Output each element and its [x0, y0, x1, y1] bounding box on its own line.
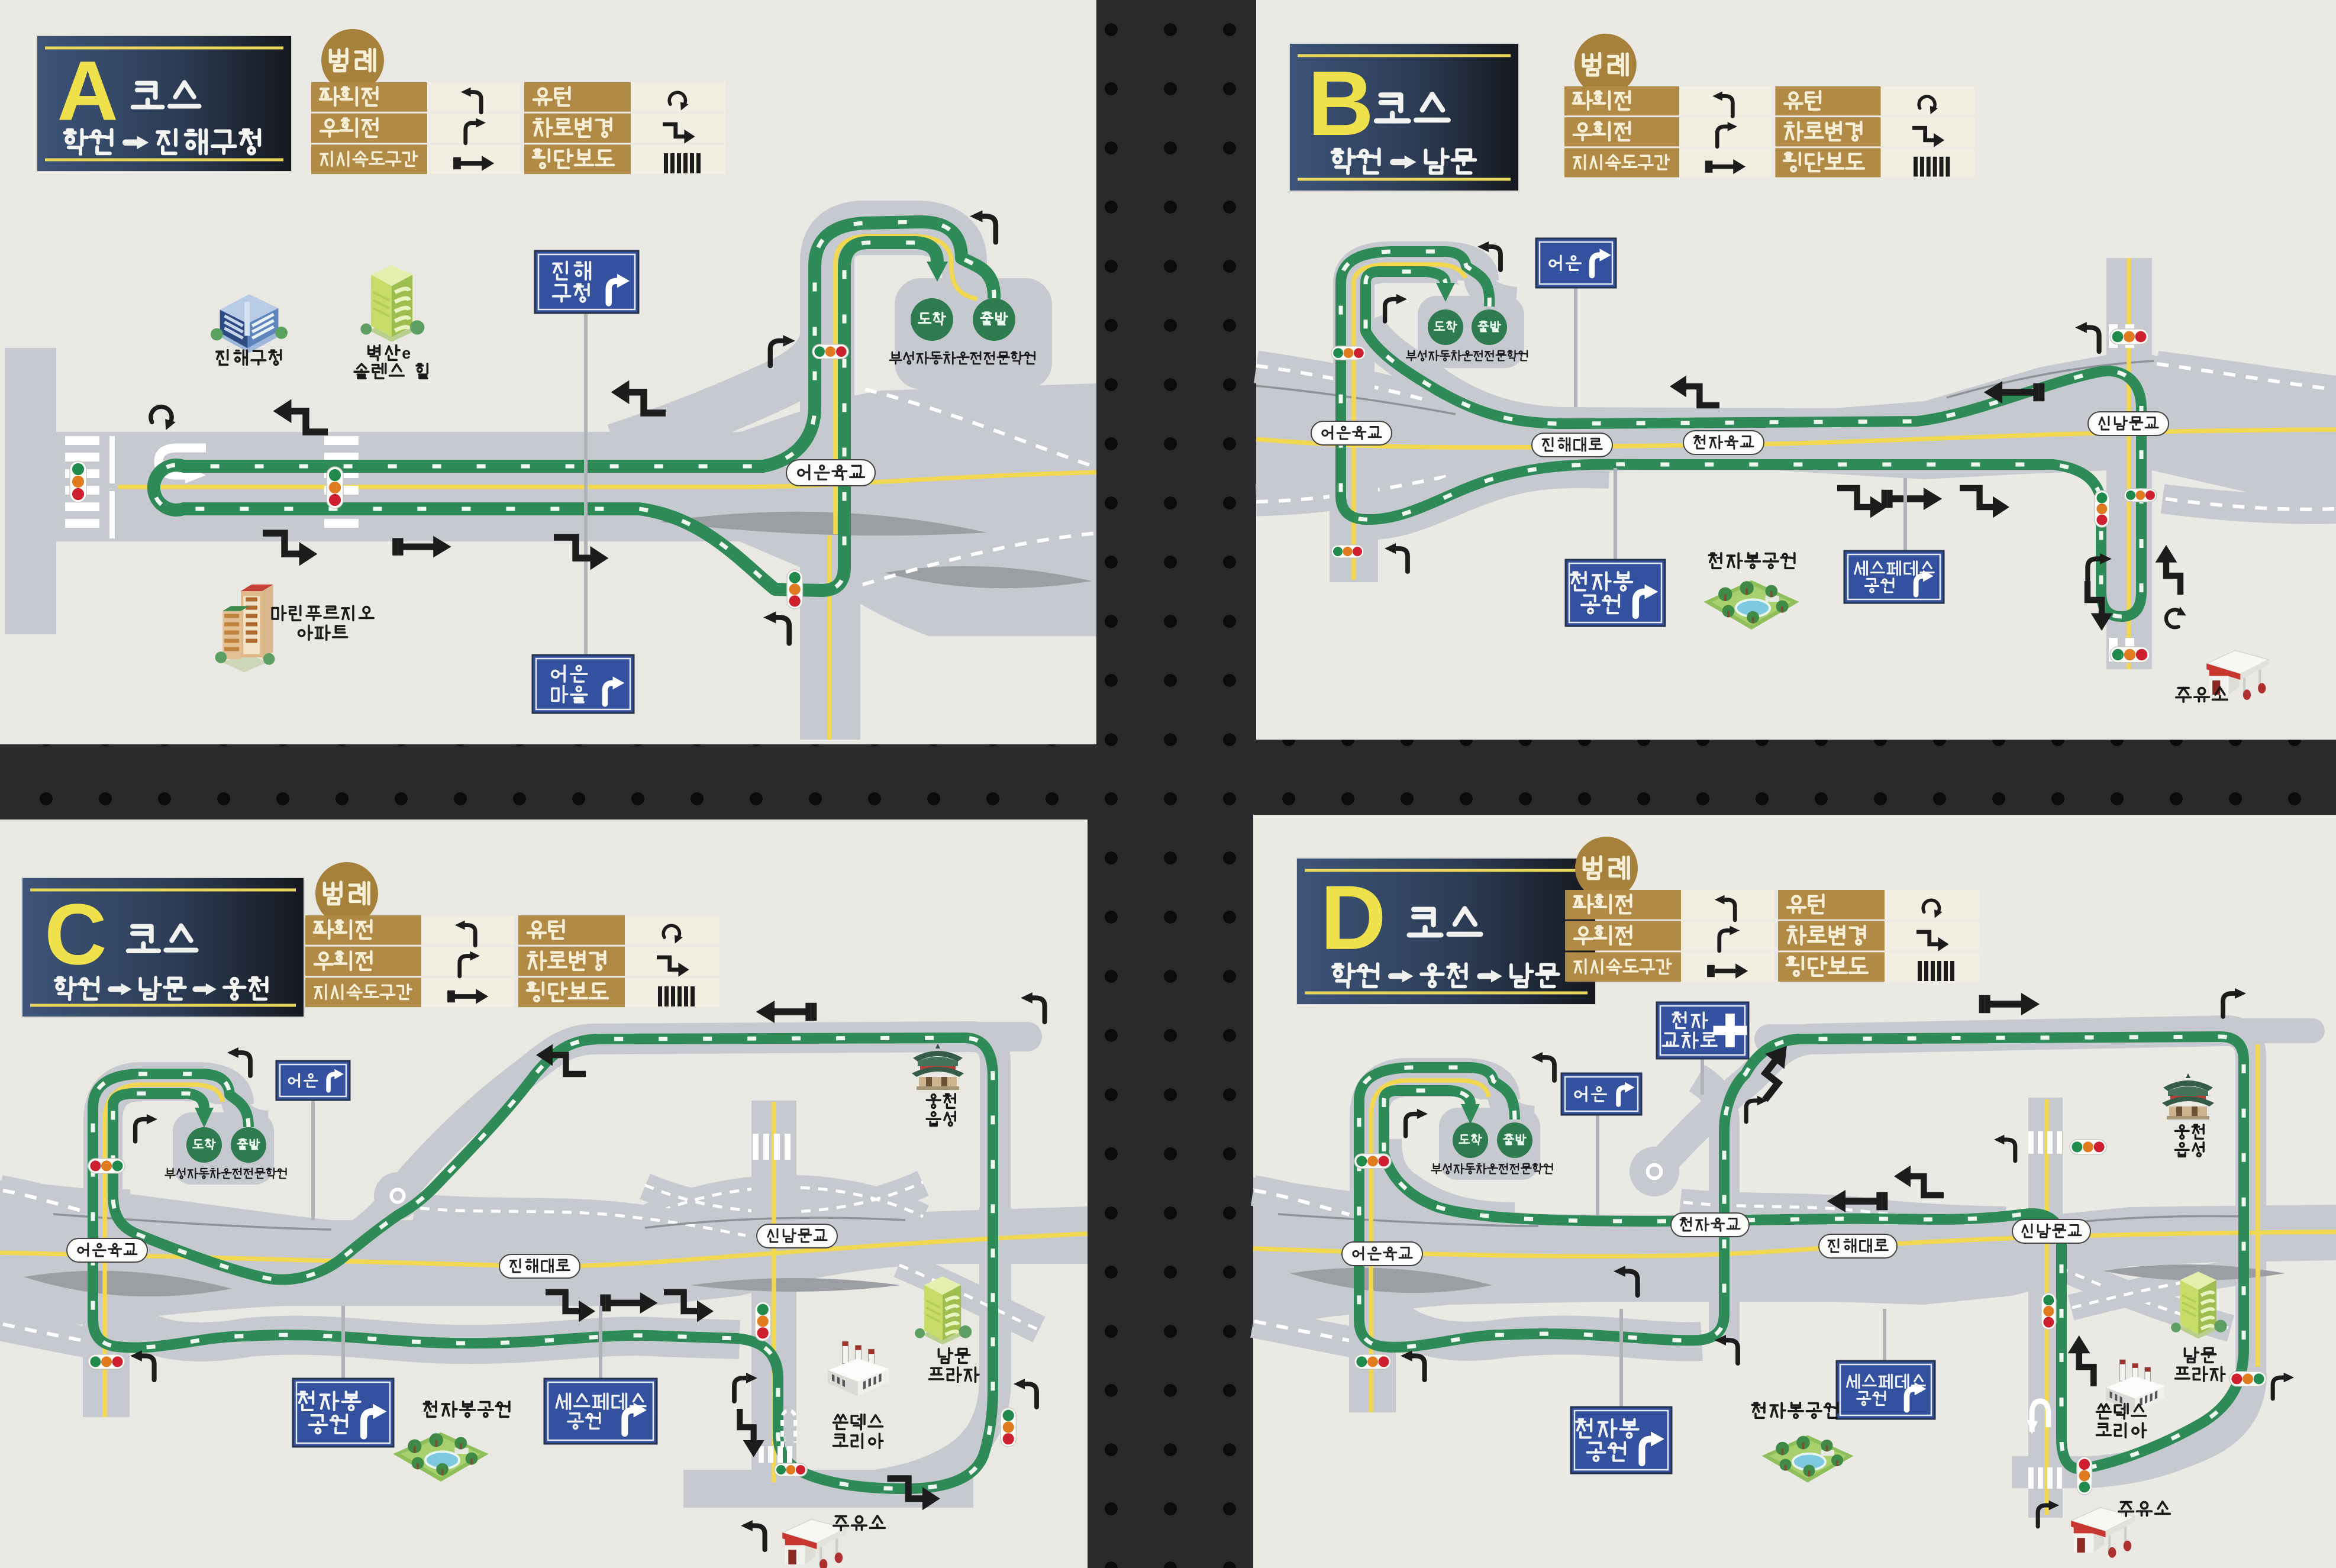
svg-text:A: A [57, 44, 118, 138]
svg-text:B: B [1308, 52, 1374, 154]
svg-text:C: C [44, 886, 107, 982]
svg-text:e: e [402, 344, 411, 362]
svg-text:D: D [1321, 867, 1386, 969]
